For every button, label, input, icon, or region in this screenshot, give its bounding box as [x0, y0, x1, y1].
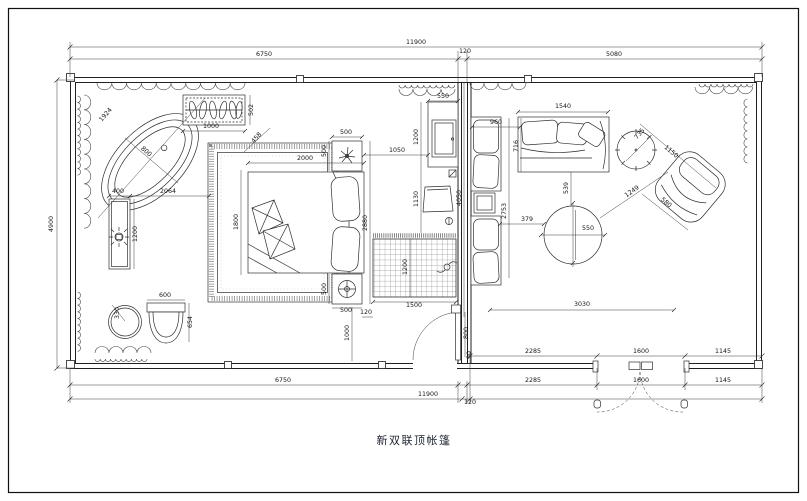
dim-label: 500 [321, 283, 328, 295]
dim-label: 2753 [501, 203, 508, 219]
dim-label: 1600 [633, 377, 649, 384]
dim-label: 550 [437, 93, 449, 100]
dim-label: 1130 [413, 191, 420, 207]
dim-label: 120 [464, 399, 476, 406]
dim-label: 1800 [233, 214, 240, 230]
nightstand-bottom [332, 274, 362, 304]
dim-label: 11900 [418, 391, 438, 398]
vanity-counter [109, 199, 130, 269]
dim-label: 800 [463, 327, 470, 339]
dim-label: 654 [187, 316, 194, 328]
dim-label: 4900 [48, 216, 55, 232]
dim-label: 539 [563, 182, 570, 194]
dim-label: 1145 [715, 348, 731, 355]
dim-label: 1600 [633, 348, 649, 355]
dim-label: 120 [360, 309, 372, 316]
chaise-lounge-bottom [471, 216, 501, 285]
dim-label: 2064 [160, 188, 176, 195]
lamp-icon [339, 281, 356, 298]
dim-label: 2285 [525, 377, 541, 384]
dim-label: 5080 [606, 51, 622, 58]
dim-label: 2285 [525, 348, 541, 355]
dim-label: 11900 [406, 39, 426, 46]
dim-label: 600 [159, 292, 171, 299]
sofa [518, 117, 609, 172]
dim-label: 500 [321, 145, 328, 157]
dim-label: 1200 [402, 259, 409, 275]
dim-label: 1500 [406, 302, 422, 309]
dim-label: 4050 [456, 190, 463, 206]
bed [248, 172, 364, 273]
dim-label: 400 [112, 188, 124, 195]
dim-label: 6750 [275, 377, 291, 384]
dim-label: 6750 [256, 51, 272, 58]
tv-cabinet [428, 102, 458, 177]
dim-label: 500 [340, 307, 352, 314]
dim-label: 1145 [715, 377, 731, 384]
dim-label: 90 [466, 351, 473, 359]
dim-label: 2880 [362, 215, 369, 231]
flower-box [183, 95, 245, 125]
dim-label: 960 [490, 119, 502, 126]
nightstand-top [332, 141, 362, 171]
dim-label: 1000 [344, 325, 351, 341]
tv-screen [432, 120, 456, 157]
dim-label: 1540 [555, 103, 571, 110]
door-leaf-left [629, 362, 640, 370]
dim-label: 500 [340, 129, 352, 136]
dim-label: 1200 [132, 226, 139, 242]
dim-label: 716 [513, 140, 520, 152]
dim-label: 3030 [574, 301, 590, 308]
dim-label: 502 [248, 104, 255, 116]
dim-label: 1200 [413, 129, 420, 145]
dim-label: 550 [582, 225, 594, 232]
dim-label: 379 [521, 216, 533, 223]
chaise-lounge-top [471, 117, 501, 191]
drawing-title: 新双联顶帐篷 [377, 433, 452, 447]
grid-rug [373, 236, 457, 298]
door-leaf-right [642, 362, 653, 370]
dim-label: 330 [114, 307, 121, 319]
dim-label: 2000 [297, 155, 313, 162]
dim-label: 1050 [389, 147, 405, 154]
dim-label: 1000 [203, 123, 219, 130]
floor-plan-canvas: 1190067501205080490022851600114567502285… [0, 0, 807, 501]
dim-label: 120 [459, 48, 471, 55]
side-tray-table [474, 193, 495, 213]
